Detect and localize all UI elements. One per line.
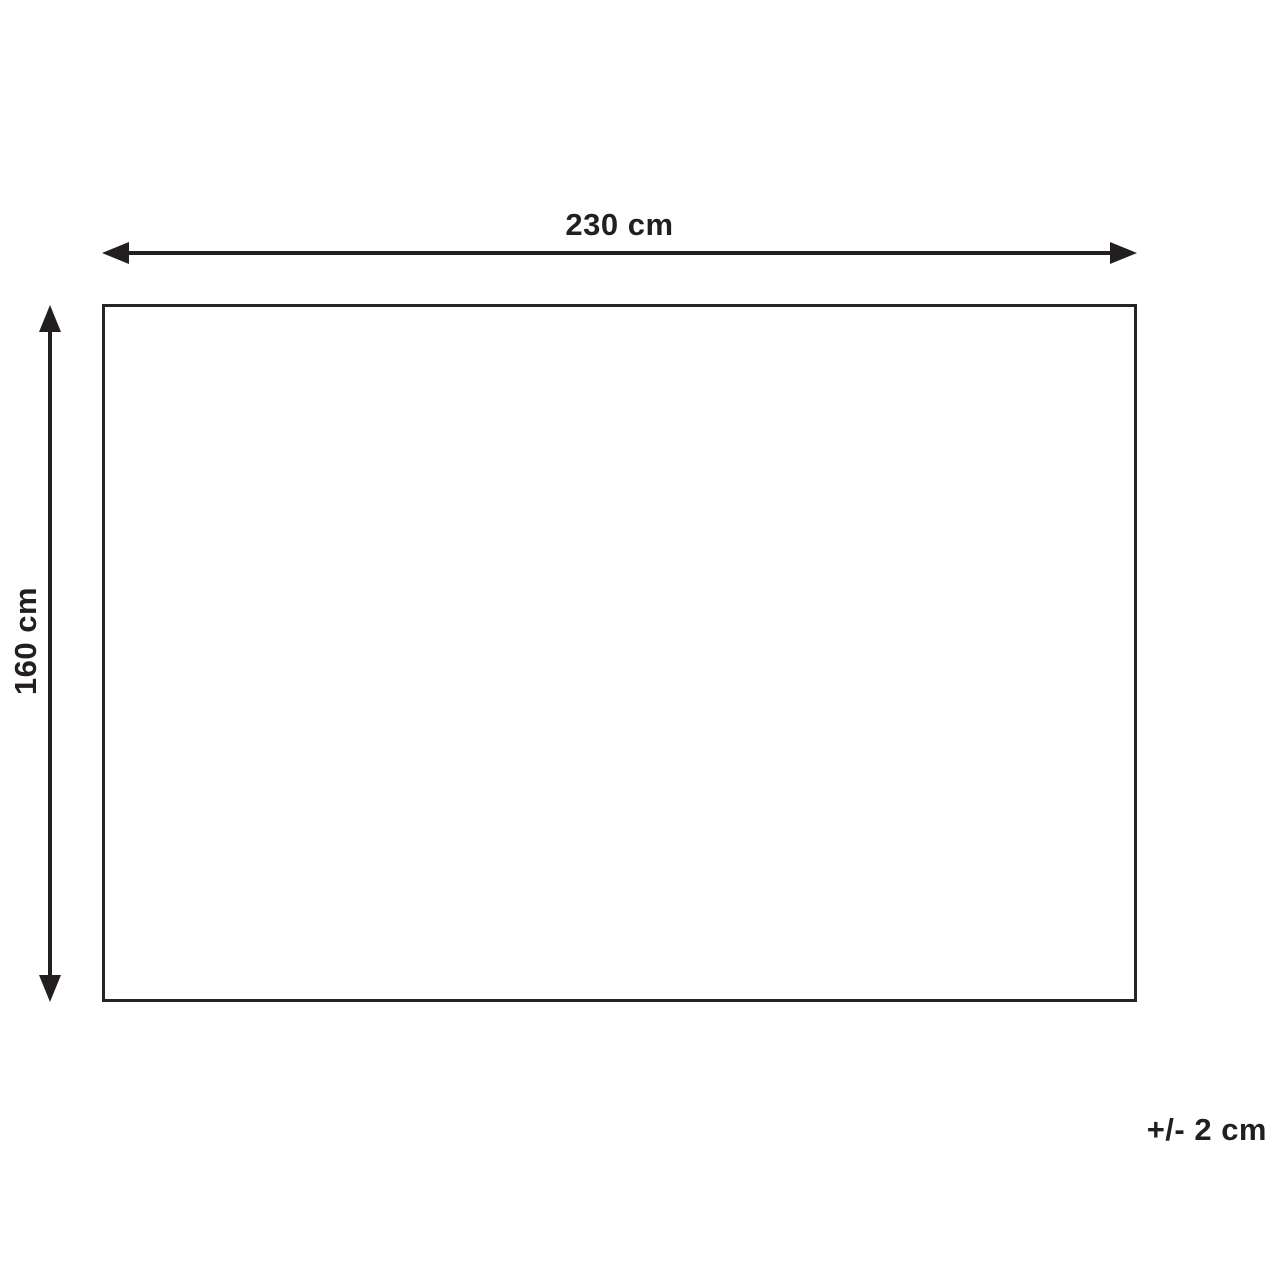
tolerance-label: +/- 2 cm <box>1147 1112 1267 1148</box>
height-dimension-label: 160 cm <box>8 587 44 695</box>
product-outline-rect <box>102 304 1137 1002</box>
dimension-diagram: 230 cm 160 cm +/- 2 cm <box>0 0 1279 1280</box>
width-dimension-label: 230 cm <box>102 207 1137 243</box>
